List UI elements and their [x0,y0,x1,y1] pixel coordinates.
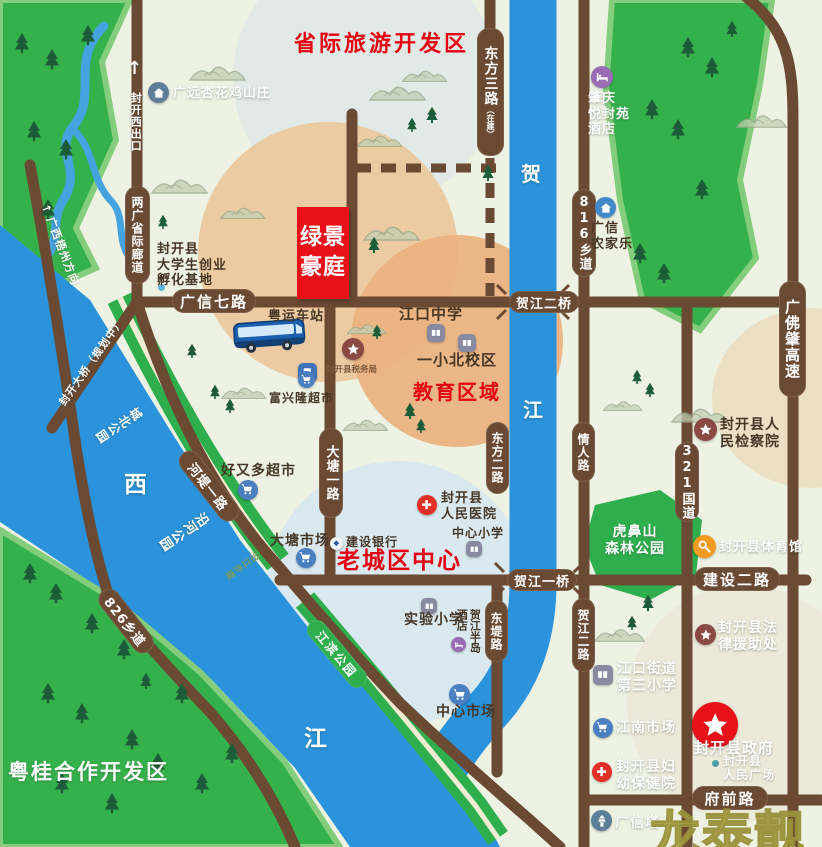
poi-tax-bureau: 封开县税务局 [326,365,377,375]
xikou-exit-arrow: ↑ [127,58,142,80]
yuegui-zone-label: 粤桂合作开发区 [8,760,169,785]
legal-aid-star-icon [695,624,716,645]
bridge-hejiang-2: 贺江二桥 [509,291,579,313]
education-zone-label: 教育区域 [413,380,501,404]
poi-stadium: 封开县体育馆 [719,540,803,556]
school-icon-jiangkou [427,324,445,342]
road-jianshe-2: 建设二路 [694,567,780,591]
school-icon-zhongxin [466,541,482,557]
hotel-bed-icon [591,66,613,88]
road-dongfang-3: 东方三路（在建） [477,28,504,156]
poi-datang-market: 大塘市场 [270,533,330,550]
farmstay-house-icon [595,197,616,218]
tourism-zone-label: 省际旅游开发区 [294,32,469,58]
xi-river-label-a: 西 [124,472,148,500]
watermark-logo: 龙泰靓房 [650,795,822,847]
road-gfz-highway: 广佛肇高速 [779,281,806,397]
market-cart-icon-jiangnan [593,718,613,738]
maternity-hospital-cross-icon [592,762,612,782]
farmhouse-icon [148,82,169,103]
poi-guangxin-farmstay: 广信 农家乐 [591,221,633,252]
road-321-national: 321国道 [675,442,699,522]
poi-peoples-hospital: 封开县 人民医院 [441,491,497,522]
poi-procuratorate: 封开县人 民检察院 [720,417,780,451]
road-hejiang-2: 贺江二路 [572,598,595,672]
poi-yixiao-north-campus: 一小北校区 [417,351,497,369]
xi-river-label-b: 江 [304,726,328,754]
bank-icon [330,537,343,550]
poi-fuxinglong-market: 富兴隆超市 [269,391,334,405]
procuratorate-star-icon [694,418,717,441]
hospital-cross-icon [417,495,437,515]
hubi-park-label: 虎鼻山 森林公园 [605,524,665,558]
bridge-hejiang-1: 贺江一桥 [507,569,577,591]
road-guangxin-7: 广信七路 [172,289,256,313]
tower-icon [591,810,612,831]
road-dongfang-2: 东方二路 [486,422,509,494]
oldtown-zone-label: 老城区中心 [337,548,462,576]
market-cart-icon-datang [296,548,316,568]
road-dongfang-3-note: （在建） [485,106,496,138]
poi-third-primary: 江口街道 第三小学 [617,661,677,695]
poi-center-primary: 中心小学 [452,526,504,540]
poi-center-market: 中心市场 [436,704,496,721]
poi-peninsula-hotel: 贺江半岛 酒店 [455,609,481,653]
poi-haoyouduo-market: 好又多超市 [221,463,296,480]
tax-bureau-star-icon [342,338,364,360]
road-xikou-exit-label: 封开西出口 [129,92,142,152]
market-cart-icon-haoyouduo [238,480,258,500]
poi-yueyun-station: 粤运车站 [268,309,324,325]
he-river-label-a: 贺 [521,162,542,186]
poi-legal-aid: 封开县法 律援助处 [718,620,778,654]
road-datang-1: 大塘一路 [319,428,343,518]
poi-zhaoqing-hotel: 肇庆 悦封苑 酒店 [588,91,630,138]
he-river-label-b: 江 [523,398,544,422]
hand-drawn-location-map: 省际旅游开发区 教育区域 老城区中心 粤桂合作开发区 绿景 豪庭 西 江 贺 江… [0,0,822,847]
road-dongdi: 东堤路 [485,600,508,662]
school-icon-yixiao [458,334,476,352]
market-cart-icon-fuxinglong [298,371,315,388]
road-liangguang-corridor: 两广省际廊道 [125,186,150,284]
property-marker-lvjing-haoting: 绿景 豪庭 [297,207,349,299]
road-qingren: 情人路 [572,422,595,482]
poi-maternity-hospital: 封开县妇 幼保健院 [616,759,676,793]
square-dot-icon [712,760,719,767]
poi-incubator: 封开县 大学生创业 孵化基地 [157,242,227,289]
poi-xinghua-farm: 广远杏花鸡山庄 [173,86,271,102]
poi-ccb-bank: 建设银行 [346,535,398,549]
school-icon-third-primary [593,665,613,685]
poi-jiangkou-middle-school: 江口中学 [399,305,463,323]
stadium-racket-icon [693,535,716,558]
poi-peoples-square: 封开县 人民广场 [723,754,775,783]
market-cart-icon-zhongxin [449,684,470,705]
poi-jiangnan-market: 江南市场 [616,720,676,737]
